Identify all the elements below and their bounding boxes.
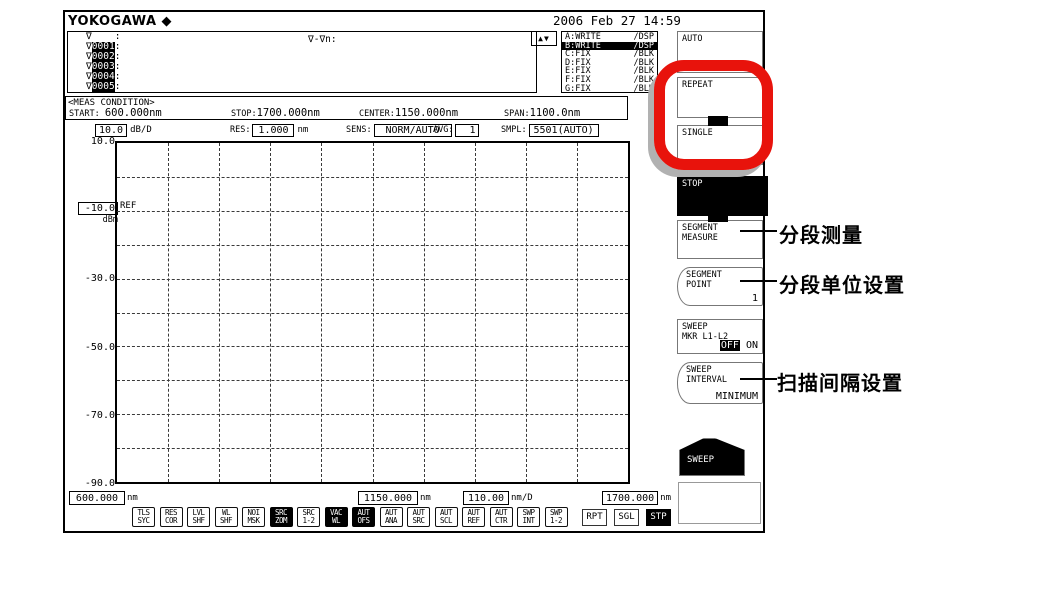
ref-line-label: REF bbox=[120, 201, 138, 211]
indicator-vac-wl: VACWL bbox=[325, 507, 348, 527]
annotation-connector-line bbox=[740, 378, 777, 380]
brand-diamond-icon: ◆ bbox=[162, 14, 173, 29]
indicator-aut-ofs: AUTOFS bbox=[352, 507, 375, 527]
softkey-sweep-interval[interactable]: SWEEP INTERVAL MINIMUM bbox=[677, 362, 763, 404]
ref-level-value: -10.0 bbox=[78, 202, 118, 215]
status-indicator-bar: TLSSYC RESCOR LVLSHF WLSHF NOIMSK SRCZOM… bbox=[132, 507, 671, 527]
mode-stop-badge: STP bbox=[646, 509, 671, 526]
marker-difference-label: ∇-∇n: bbox=[308, 34, 337, 45]
annotation-sweep-interval: 扫描间隔设置 bbox=[777, 367, 903, 396]
y-axis-label: -30.0 bbox=[73, 273, 115, 284]
highlight-ring bbox=[654, 60, 773, 170]
off-on-toggle: OFF ON bbox=[720, 341, 758, 351]
gridline-vertical bbox=[475, 143, 476, 482]
indicator-aut-ana: AUTANA bbox=[380, 507, 403, 527]
sweep-mode-group: RPT SGL STP bbox=[580, 509, 671, 526]
indicator-noi-msk: NOIMSK bbox=[242, 507, 265, 527]
softkey-segment-measure[interactable]: SEGMENT MEASURE bbox=[677, 220, 763, 259]
gridline-horizontal bbox=[117, 380, 628, 381]
gridline-vertical bbox=[424, 143, 425, 482]
annotation-connector-line bbox=[740, 230, 777, 232]
gridline-horizontal bbox=[117, 414, 628, 415]
mode-repeat-badge: RPT bbox=[582, 509, 607, 526]
marker-list-panel: ∇: ∇0001: ∇0002: ∇0003: ∇0004: ∇0005: ∇-… bbox=[67, 31, 537, 93]
average-value: 1 bbox=[455, 124, 479, 137]
stop-wavelength: STOP:1700.000nm bbox=[231, 107, 320, 119]
average-setting: AVG: 1 bbox=[433, 123, 479, 137]
x-axis-scale: 110.00 nm/D bbox=[463, 490, 533, 505]
marker-row: ∇0001: bbox=[68, 42, 536, 52]
softkey-blank[interactable] bbox=[678, 482, 761, 524]
center-wavelength: CENTER:1150.000nm bbox=[359, 107, 458, 119]
x-axis-start: 600.000 nm bbox=[69, 490, 138, 505]
y-axis-label: -50.0 bbox=[73, 342, 115, 353]
brand-name: YOKOGAWA bbox=[68, 14, 157, 29]
sweep-interval-value: MINIMUM bbox=[716, 392, 758, 402]
indicator-aut-scl: AUTSCL bbox=[435, 507, 458, 527]
indicator-src-zom: SRCZOM bbox=[270, 507, 293, 527]
indicator-aut-ctr: AUTCTR bbox=[490, 507, 513, 527]
y-axis-label-top: 10.0 bbox=[73, 136, 115, 147]
indicator-res-cor: RESCOR bbox=[160, 507, 183, 527]
annotation-segment-measure: 分段测量 bbox=[779, 219, 863, 248]
level-scale-value: 10.0 bbox=[95, 124, 127, 137]
resolution-setting: RES: 1.000 nm bbox=[230, 123, 310, 137]
marker-row: ∇: bbox=[68, 32, 536, 42]
gridline-vertical bbox=[526, 143, 527, 482]
indicator-lvl-shf: LVLSHF bbox=[187, 507, 210, 527]
spectrum-plot-area: REF bbox=[115, 141, 630, 484]
softkey-sweep-marker[interactable]: SWEEP MKR L1-L2 OFF ON bbox=[677, 319, 763, 354]
gridline-horizontal bbox=[117, 448, 628, 449]
marker-row: ∇0004: bbox=[68, 72, 536, 82]
marker-row: ∇0003: bbox=[68, 62, 536, 72]
softkey-segment-point[interactable]: SEGMENT POINT 1 bbox=[677, 267, 763, 306]
sampling-setting: SMPL: 5501(AUTO) bbox=[501, 123, 599, 137]
indicator-aut-ref: AUTREF bbox=[462, 507, 485, 527]
x-axis-stop: 1700.000 nm bbox=[602, 490, 671, 505]
segment-point-value: 1 bbox=[752, 294, 758, 304]
indicator-src-1-2: SRC1-2 bbox=[297, 507, 320, 527]
softkey-stop[interactable]: STOP bbox=[677, 176, 768, 216]
gridline-horizontal bbox=[117, 313, 628, 314]
sweep-menu-key[interactable]: SWEEP bbox=[679, 438, 745, 476]
scroll-updown-icon[interactable]: ▲▼ bbox=[531, 31, 557, 46]
indicator-swp-1-2: SWP1-2 bbox=[545, 507, 568, 527]
trace-status-panel: A:WRITE/DSP B:WRITE/DSP C:FIX/BLK D:FIX/… bbox=[561, 31, 658, 93]
level-scale-setting: 10.0 dB/D bbox=[95, 123, 154, 137]
annotation-connector-line bbox=[740, 280, 777, 282]
indicator-aut-src: AUTSRC bbox=[407, 507, 430, 527]
start-wavelength: START: 600.000nm bbox=[69, 107, 162, 119]
sampling-value: 5501(AUTO) bbox=[529, 124, 599, 137]
gridline-horizontal bbox=[117, 346, 628, 347]
indicator-wl-shf: WLSHF bbox=[215, 507, 238, 527]
indicator-swp-int: SWPINT bbox=[517, 507, 540, 527]
x-axis-center: 1150.000 nm bbox=[358, 490, 431, 505]
resolution-value: 1.000 bbox=[252, 124, 294, 137]
level-unit-label: dBm bbox=[87, 215, 118, 225]
brand-logo: YOKOGAWA ◆ bbox=[68, 14, 172, 29]
marker-row: ∇0005: bbox=[68, 82, 536, 92]
y-axis-label-bottom: -90.0 bbox=[73, 478, 115, 489]
datetime-display: 2006 Feb 27 14:59 bbox=[553, 13, 681, 28]
gridline-vertical bbox=[577, 143, 578, 482]
marker-row: ∇0002: bbox=[68, 52, 536, 62]
y-axis-label: -70.0 bbox=[73, 410, 115, 421]
indicator-tls-syc: TLSSYC bbox=[132, 507, 155, 527]
annotation-segment-point: 分段单位设置 bbox=[779, 269, 905, 298]
manual-figure: YOKOGAWA ◆ 2006 Feb 27 14:59 ∇: ∇0001: ∇… bbox=[0, 0, 1054, 600]
trace-status-row: G:FIX/BLK bbox=[562, 85, 657, 94]
softkey-connector-tab bbox=[708, 212, 728, 222]
span-wavelength: SPAN:1100.0nm bbox=[504, 107, 580, 119]
meas-condition-panel: <MEAS CONDITION> START: 600.000nm STOP:1… bbox=[65, 96, 628, 120]
mode-single-badge: SGL bbox=[614, 509, 639, 526]
